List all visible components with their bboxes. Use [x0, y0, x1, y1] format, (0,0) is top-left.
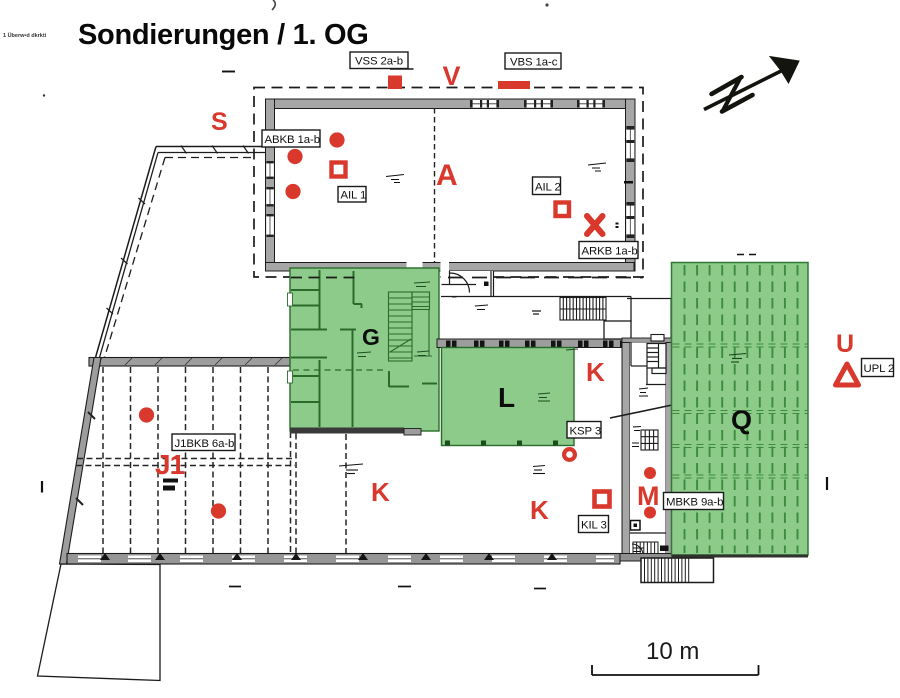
svg-text:L: L — [498, 382, 515, 413]
svg-text:U: U — [836, 330, 854, 358]
svg-text:AIL 1: AIL 1 — [341, 190, 367, 202]
svg-text:VBS 1a-c: VBS 1a-c — [510, 57, 558, 69]
svg-text:KIL 3: KIL 3 — [581, 520, 607, 532]
svg-text:ABKB 1a-b: ABKB 1a-b — [265, 134, 320, 146]
svg-text:ARKB 1a-b: ARKB 1a-b — [582, 246, 638, 258]
svg-text:V: V — [443, 61, 461, 91]
svg-text:Sondierungen / 1. OG: Sondierungen / 1. OG — [78, 19, 368, 51]
svg-text:VSS 2a-b: VSS 2a-b — [355, 56, 403, 68]
svg-text:A: A — [436, 159, 458, 192]
svg-text:10 m: 10 m — [646, 638, 699, 665]
svg-text:M: M — [637, 481, 660, 511]
svg-text:J1: J1 — [155, 449, 185, 480]
svg-text:K: K — [586, 357, 605, 387]
svg-text:MBKB 9a-b: MBKB 9a-b — [666, 497, 723, 509]
svg-text:KSP 3: KSP 3 — [570, 426, 602, 438]
svg-text:AIL 2: AIL 2 — [535, 182, 561, 194]
svg-text:G: G — [362, 324, 380, 350]
svg-text:Q: Q — [731, 405, 752, 435]
svg-text:UPL 2: UPL 2 — [864, 363, 895, 375]
svg-text:1 Überw•d dkrkti: 1 Überw•d dkrkti — [3, 32, 47, 39]
svg-text:K: K — [530, 495, 549, 525]
svg-text:K: K — [371, 477, 390, 507]
svg-text:S: S — [211, 108, 228, 136]
